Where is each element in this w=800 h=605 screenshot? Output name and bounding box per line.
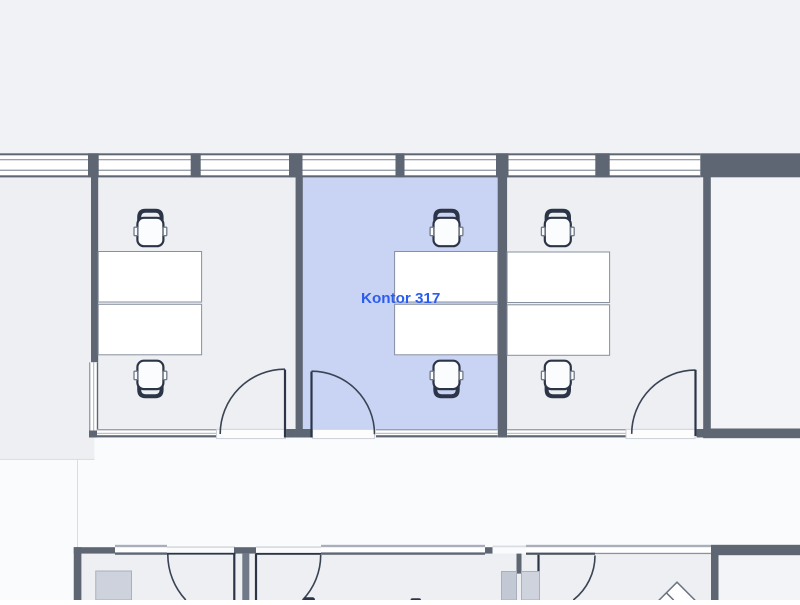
svg-text:Kontor 317: Kontor 317 (361, 290, 440, 307)
